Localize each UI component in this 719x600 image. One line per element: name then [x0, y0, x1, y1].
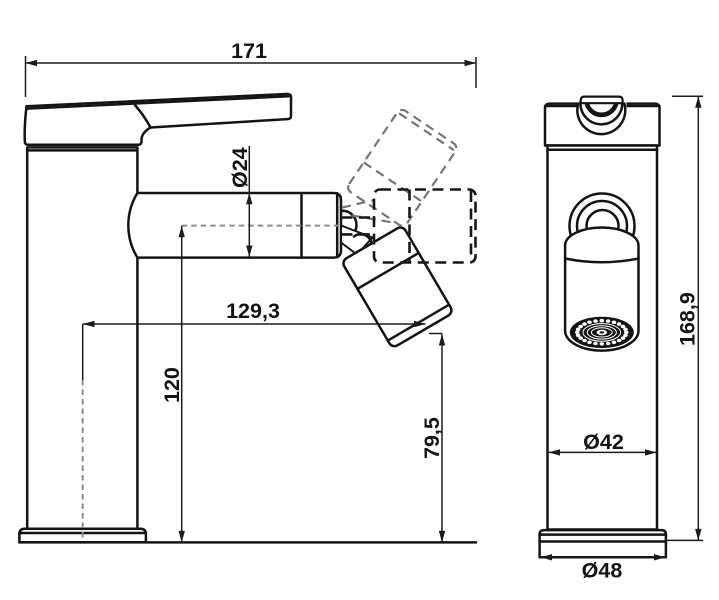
- svg-text:Ø42: Ø42: [583, 430, 624, 454]
- svg-text:79,5: 79,5: [420, 417, 444, 459]
- svg-text:Ø24: Ø24: [228, 147, 252, 188]
- svg-text:168,9: 168,9: [676, 292, 700, 346]
- svg-text:129,3: 129,3: [226, 299, 280, 323]
- svg-text:171: 171: [231, 39, 267, 63]
- svg-text:Ø48: Ø48: [582, 559, 623, 583]
- svg-text:120: 120: [160, 367, 184, 403]
